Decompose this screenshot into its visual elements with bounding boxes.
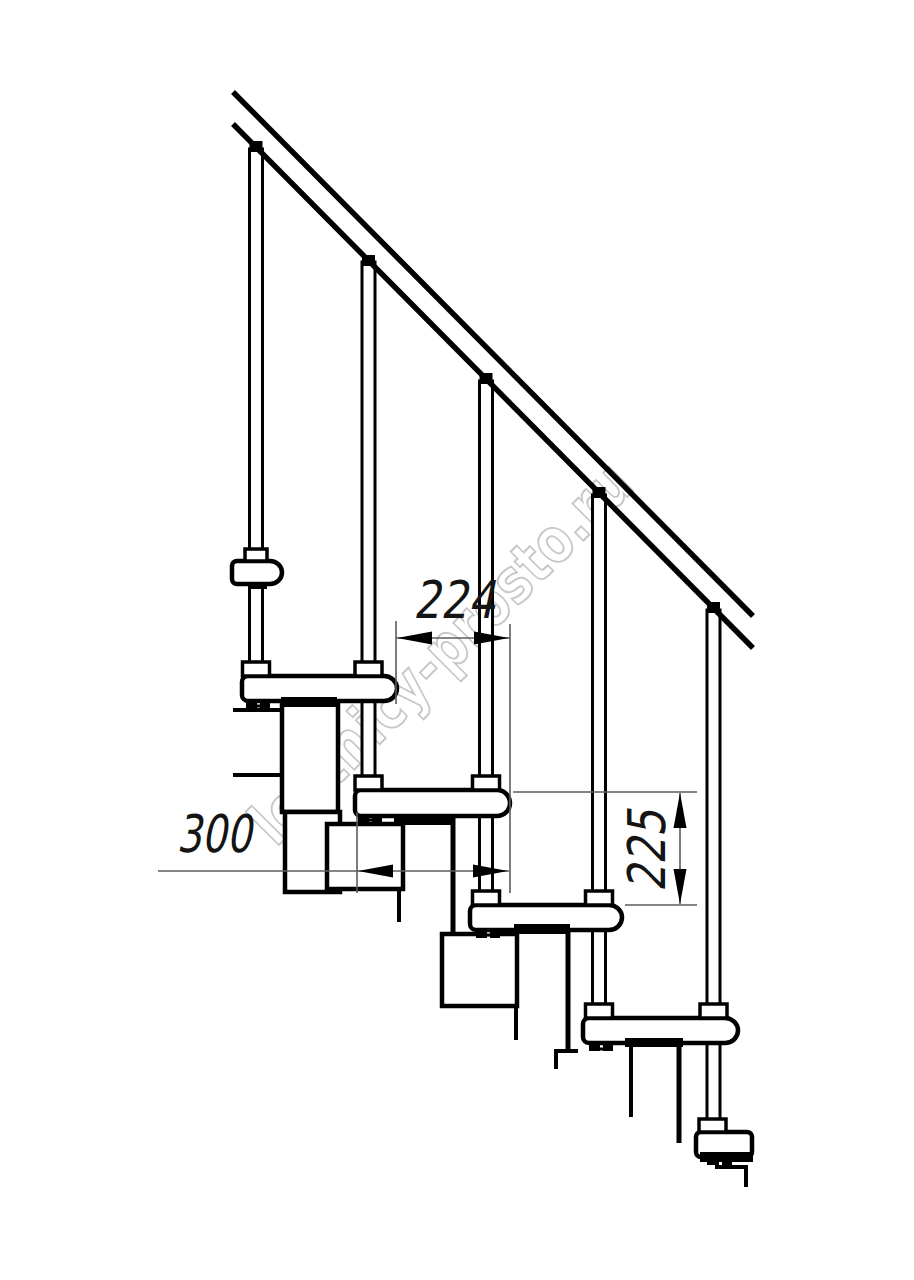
collar-b1-bracket [245, 549, 267, 561]
collar-b3-t2 [473, 776, 500, 790]
collar-b4-t3 [586, 891, 613, 905]
module-box-2 [327, 824, 403, 889]
module-plate-2 [394, 814, 453, 825]
nut-tread5-a [707, 1156, 719, 1165]
collar-b3-t3 [473, 891, 500, 905]
nut-bracket [249, 584, 267, 589]
module-plate-4 [625, 1038, 683, 1047]
collar-b5-t5 [699, 1119, 726, 1132]
floor-break-line [715, 1167, 746, 1187]
baluster-tube-2 [362, 262, 375, 820]
tread-2 [355, 790, 510, 816]
nut-tread1-a [246, 700, 257, 709]
baluster-tube-1 [250, 149, 263, 706]
collar-b1-t1 [243, 662, 270, 676]
baluster-tube-5 [707, 610, 720, 1127]
collar-b2-t2 [355, 776, 382, 790]
nut-tread1-b [260, 700, 270, 709]
nut-tread3-a [476, 929, 487, 938]
collar-b5-t4 [700, 1004, 727, 1018]
collar-b4-t4 [586, 1004, 613, 1018]
nut-tread4-b [603, 1042, 613, 1051]
drawing-page: lestnicy-prosto.ru [0, 0, 914, 1280]
nut-tread2-a [358, 815, 369, 825]
nut-tread5-b [722, 1156, 732, 1165]
staircase-drawing: lestnicy-prosto.ru [0, 0, 914, 1280]
collar-b2-t1 [355, 662, 382, 676]
nut-tread2-b [372, 815, 382, 825]
dimension-going-label: 224 [413, 570, 497, 630]
landing-nose-bracket [232, 561, 282, 584]
baluster-tube-4 [593, 495, 606, 1049]
module-box-3 [442, 934, 517, 1006]
dimension-tread-depth-label: 300 [177, 804, 255, 864]
nut-tread4-a [589, 1042, 600, 1051]
baluster-tube-3 [480, 381, 493, 935]
module-plate-3 [514, 924, 570, 934]
nut-tread3-b [490, 929, 500, 938]
dimension-riser-height-label: 225 [617, 808, 677, 892]
module-plate-1 [281, 697, 337, 707]
module-box-1a [282, 703, 338, 812]
